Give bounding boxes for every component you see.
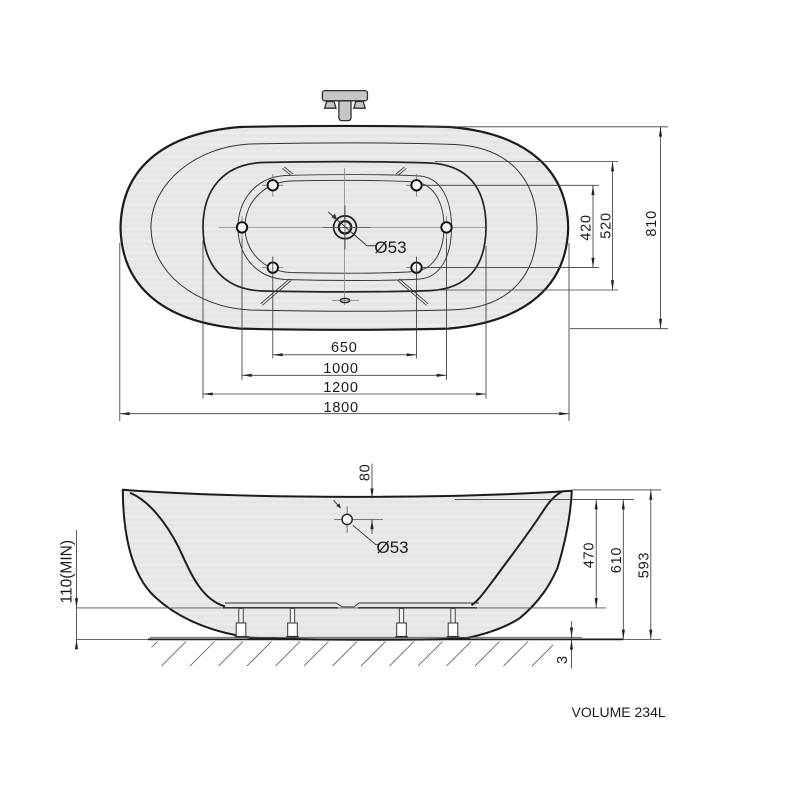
svg-text:VOLUME 234L: VOLUME 234L — [572, 704, 666, 720]
svg-text:3: 3 — [555, 656, 571, 664]
svg-text:420: 420 — [579, 214, 595, 241]
svg-text:520: 520 — [598, 212, 614, 239]
svg-text:1800: 1800 — [323, 400, 358, 416]
svg-text:110(MIN): 110(MIN) — [58, 540, 75, 603]
svg-text:593: 593 — [636, 552, 652, 579]
svg-text:80: 80 — [357, 463, 373, 481]
svg-text:470: 470 — [582, 542, 598, 569]
svg-text:Ø53: Ø53 — [374, 238, 406, 257]
svg-text:Ø53: Ø53 — [377, 538, 409, 557]
svg-text:810: 810 — [644, 210, 660, 237]
svg-text:610: 610 — [609, 547, 625, 574]
svg-text:650: 650 — [331, 340, 358, 356]
svg-text:1200: 1200 — [323, 380, 358, 396]
svg-text:1000: 1000 — [323, 361, 358, 377]
